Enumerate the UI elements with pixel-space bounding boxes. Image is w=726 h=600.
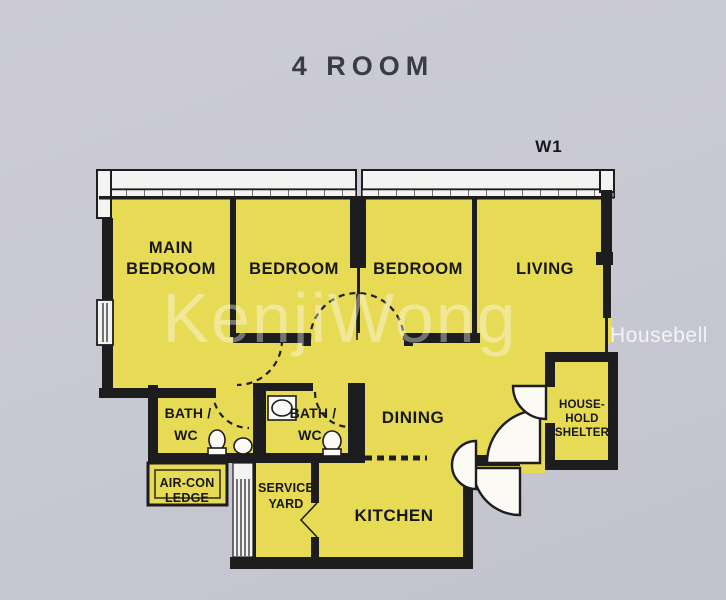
basin-icon [234, 438, 252, 454]
shelter-label-3: SHELTER [555, 427, 610, 439]
shelter-label-1: HOUSE- [559, 399, 605, 411]
bedroom3-label: BEDROOM [373, 260, 463, 278]
shelter-label-2: HOLD [565, 413, 598, 425]
entrance-gate-arc [473, 468, 520, 515]
bath1-label-1: BATH / [165, 405, 212, 421]
household-shelter [545, 352, 618, 470]
toilet-icon [209, 430, 225, 450]
living-label: LIVING [516, 260, 574, 278]
bay-window-return [97, 170, 111, 218]
window-band-right [362, 170, 614, 198]
side-window [97, 300, 113, 345]
aircon-ledge-label-2: LEDGE [165, 491, 209, 505]
page-title: 4 ROOM [292, 51, 435, 81]
main-bedroom-label-2: BEDROOM [126, 260, 216, 278]
aircon-ledge-label-1: AIR-CON [160, 476, 215, 490]
watermark-right: Housebell [610, 324, 708, 347]
service-yard-label-1: SERVICE [258, 481, 314, 495]
kitchen-label: KITCHEN [354, 506, 433, 525]
toilet-icon [323, 431, 341, 451]
service-yard-railing [233, 463, 253, 557]
bath2-label-2: WC [298, 427, 322, 443]
bath2-label-1: BATH / [290, 405, 337, 421]
watermark-center: KenjiWong [162, 279, 517, 357]
main-bedroom-label-1: MAIN [149, 239, 193, 257]
bath1-label-2: WC [174, 427, 198, 443]
unit-stack-label: W1 [535, 137, 563, 156]
toilet-base-icon [323, 449, 341, 456]
floor-plan-canvas: 4 ROOM W1 [0, 0, 726, 600]
toilet-base-icon [208, 448, 226, 455]
service-yard-label-2: YARD [268, 497, 303, 511]
bedroom2-label: BEDROOM [249, 260, 339, 278]
dining-label: DINING [382, 408, 445, 427]
